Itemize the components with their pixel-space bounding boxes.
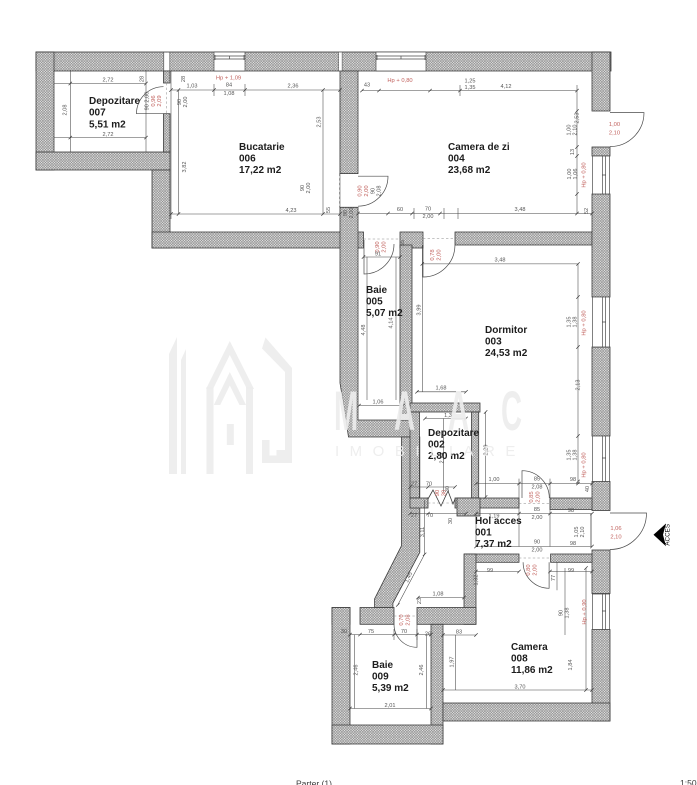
svg-text:91: 91 — [375, 252, 381, 258]
svg-text:2,00: 2,00 — [533, 564, 539, 575]
svg-text:Hp + 1,09: Hp + 1,09 — [216, 76, 241, 82]
svg-text:2,09: 2,09 — [157, 95, 163, 106]
svg-text:2,00: 2,00 — [306, 183, 312, 194]
svg-text:3,70: 3,70 — [515, 685, 526, 691]
svg-text:3,48: 3,48 — [515, 207, 526, 213]
svg-text:90: 90 — [534, 540, 540, 546]
svg-text:4,48: 4,48 — [361, 325, 367, 336]
svg-text:24,53 m2: 24,53 m2 — [485, 348, 528, 359]
svg-text:23,68 m2: 23,68 m2 — [448, 165, 491, 176]
svg-text:5,51 m2: 5,51 m2 — [89, 120, 126, 131]
svg-text:001: 001 — [475, 528, 492, 539]
svg-text:3,82: 3,82 — [182, 162, 188, 173]
svg-text:30: 30 — [341, 629, 347, 635]
svg-text:Hp + 0,80: Hp + 0,80 — [387, 78, 412, 84]
svg-text:Camera: Camera — [511, 642, 548, 653]
svg-text:2,00: 2,00 — [437, 249, 443, 260]
svg-text:Hp + 0,90: Hp + 0,90 — [582, 599, 588, 624]
svg-text:1,38: 1,38 — [573, 450, 579, 461]
svg-text:004: 004 — [448, 154, 465, 165]
svg-text:Baie: Baie — [372, 660, 394, 671]
svg-text:Hp + 0,80: Hp + 0,80 — [582, 452, 588, 477]
svg-text:7,37 m2: 7,37 m2 — [475, 539, 512, 550]
svg-text:30: 30 — [442, 490, 448, 496]
svg-text:0,85: 0,85 — [529, 491, 535, 502]
svg-text:70: 70 — [425, 207, 431, 213]
svg-text:99: 99 — [487, 568, 493, 574]
svg-text:006: 006 — [239, 154, 256, 165]
svg-text:52: 52 — [584, 208, 590, 214]
svg-text:Baie: Baie — [366, 285, 388, 296]
svg-text:60: 60 — [397, 207, 403, 213]
svg-text:98: 98 — [570, 541, 576, 547]
svg-text:IMOBILIARE: IMOBILIARE — [335, 443, 526, 460]
svg-text:28: 28 — [140, 76, 146, 82]
svg-text:5,39 m2: 5,39 m2 — [372, 683, 409, 694]
svg-text:70: 70 — [427, 513, 433, 519]
svg-text:70: 70 — [426, 482, 432, 488]
svg-text:1,00: 1,00 — [609, 122, 620, 128]
svg-text:1,35: 1,35 — [465, 85, 476, 91]
svg-text:1,25: 1,25 — [465, 79, 476, 85]
svg-text:90 2,00: 90 2,00 — [145, 92, 151, 111]
svg-text:98: 98 — [568, 508, 574, 514]
svg-text:2,08: 2,08 — [377, 186, 383, 197]
svg-text:1,03: 1,03 — [187, 84, 198, 90]
svg-text:2,53: 2,53 — [575, 113, 581, 124]
svg-text:2,46: 2,46 — [419, 665, 425, 676]
svg-text:Bucatarie: Bucatarie — [239, 142, 285, 153]
svg-text:2,46: 2,46 — [354, 665, 360, 676]
svg-text:2,10: 2,10 — [610, 535, 621, 541]
svg-text:2,08: 2,08 — [532, 485, 543, 491]
svg-text:2,08: 2,08 — [406, 614, 412, 625]
svg-text:2,00: 2,00 — [183, 97, 189, 108]
svg-text:Dormitor: Dormitor — [485, 325, 527, 336]
svg-text:1,38: 1,38 — [573, 317, 579, 328]
svg-text:30: 30 — [448, 518, 454, 524]
svg-text:Hp + 0,80: Hp + 0,80 — [582, 162, 588, 187]
svg-text:1,06: 1,06 — [573, 169, 579, 180]
svg-text:2,72: 2,72 — [103, 78, 114, 84]
svg-text:Parter (1): Parter (1) — [296, 779, 332, 785]
svg-text:Camera de zi: Camera de zi — [448, 142, 510, 153]
svg-text:2,08: 2,08 — [63, 105, 69, 116]
svg-text:55: 55 — [400, 240, 406, 246]
svg-text:75: 75 — [368, 629, 374, 635]
svg-text:2,01: 2,01 — [385, 703, 396, 709]
svg-text:2,36: 2,36 — [288, 84, 299, 90]
svg-text:98: 98 — [570, 477, 576, 483]
svg-text:Hol acces: Hol acces — [475, 516, 522, 527]
svg-text:005: 005 — [366, 297, 383, 308]
svg-text:26: 26 — [425, 632, 431, 638]
svg-text:2,13: 2,13 — [576, 380, 582, 391]
svg-text:28: 28 — [181, 76, 187, 82]
svg-text:1,08: 1,08 — [433, 592, 444, 598]
svg-text:70: 70 — [401, 629, 407, 635]
svg-text:2,00: 2,00 — [382, 241, 388, 252]
svg-text:4,23: 4,23 — [286, 208, 297, 214]
svg-text:2,72: 2,72 — [103, 132, 114, 138]
svg-text:003: 003 — [485, 337, 502, 348]
svg-text:009: 009 — [372, 672, 389, 683]
svg-text:77: 77 — [551, 575, 557, 581]
svg-text:2,10: 2,10 — [609, 131, 620, 137]
svg-text:0,90: 0,90 — [358, 185, 364, 196]
svg-text:85: 85 — [534, 507, 540, 513]
svg-text:1,06: 1,06 — [373, 400, 384, 406]
svg-text:A: A — [394, 381, 415, 442]
svg-text:C: C — [501, 381, 522, 442]
svg-text:A: A — [448, 381, 469, 442]
svg-text:1,00: 1,00 — [489, 477, 500, 483]
svg-text:2,53: 2,53 — [317, 117, 323, 128]
svg-text:2,00: 2,00 — [536, 491, 542, 502]
svg-text:27: 27 — [411, 513, 417, 519]
svg-text:1,68: 1,68 — [436, 386, 447, 392]
svg-text:1,32: 1,32 — [474, 575, 480, 586]
svg-text:0,80: 0,80 — [526, 564, 532, 575]
svg-text:85: 85 — [534, 477, 540, 483]
svg-text:55: 55 — [326, 207, 332, 213]
svg-text:3,11: 3,11 — [420, 527, 426, 537]
svg-text:2,00: 2,00 — [364, 185, 370, 196]
svg-text:27: 27 — [411, 482, 417, 488]
svg-text:4,14: 4,14 — [389, 318, 395, 329]
svg-text:0,78: 0,78 — [430, 249, 436, 260]
svg-text:5,07 m2: 5,07 m2 — [366, 308, 403, 319]
svg-text:2,00: 2,00 — [532, 515, 543, 521]
svg-text:0,70: 0,70 — [399, 614, 405, 625]
svg-text:99: 99 — [568, 568, 574, 574]
svg-text:1:50: 1:50 — [680, 778, 697, 785]
svg-text:11,86 m2: 11,86 m2 — [511, 665, 553, 676]
svg-text:23: 23 — [417, 598, 423, 604]
svg-text:84: 84 — [226, 83, 232, 89]
svg-text:83: 83 — [456, 630, 462, 636]
svg-text:2,00: 2,00 — [423, 214, 434, 220]
svg-text:40: 40 — [585, 486, 591, 492]
svg-text:2,10: 2,10 — [573, 125, 579, 136]
svg-text:3,48: 3,48 — [495, 258, 506, 264]
svg-text:Depozitare: Depozitare — [89, 96, 141, 107]
svg-text:2,10: 2,10 — [580, 527, 586, 538]
svg-text:ACCES: ACCES — [665, 524, 672, 546]
svg-text:008: 008 — [511, 654, 528, 665]
svg-text:1,08: 1,08 — [224, 91, 235, 97]
svg-text:Hp + 0,80: Hp + 0,80 — [582, 310, 588, 335]
svg-text:4,12: 4,12 — [501, 84, 512, 90]
svg-text:M: M — [334, 381, 358, 442]
svg-text:2,00: 2,00 — [349, 208, 355, 219]
svg-text:1,84: 1,84 — [568, 660, 574, 671]
svg-text:3,99: 3,99 — [417, 305, 423, 316]
svg-text:13: 13 — [570, 149, 576, 155]
svg-text:43: 43 — [364, 83, 370, 89]
svg-text:1,06: 1,06 — [610, 526, 621, 532]
svg-text:90: 90 — [435, 490, 441, 496]
svg-text:007: 007 — [89, 108, 106, 119]
svg-text:1,97: 1,97 — [450, 657, 456, 668]
svg-text:17,22 m2: 17,22 m2 — [239, 165, 282, 176]
svg-text:2,00: 2,00 — [532, 548, 543, 554]
svg-text:1,38: 1,38 — [565, 608, 571, 619]
